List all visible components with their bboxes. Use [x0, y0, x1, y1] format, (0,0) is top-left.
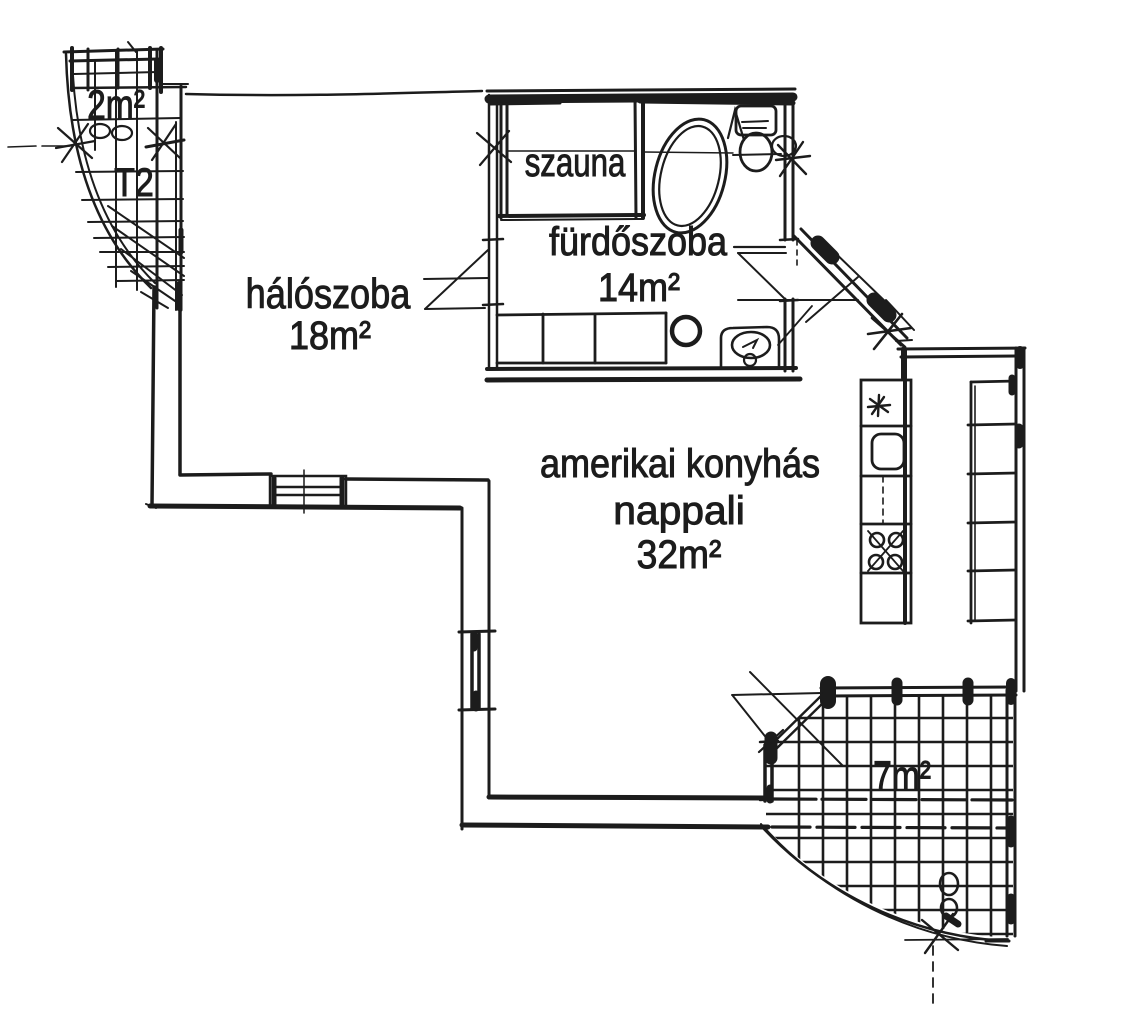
svg-text:7m²: 7m²	[873, 754, 931, 800]
svg-text:nappali: nappali	[613, 487, 745, 533]
svg-text:32m²: 32m²	[637, 533, 722, 578]
svg-text:14m²: 14m²	[598, 266, 680, 310]
svg-text:2m²: 2m²	[87, 83, 145, 129]
svg-text:szauna: szauna	[525, 140, 626, 185]
svg-text:T2: T2	[114, 159, 154, 204]
svg-text:amerikai konyhás: amerikai konyhás	[540, 442, 820, 486]
svg-text:18m²: 18m²	[289, 314, 371, 358]
svg-text:fürdőszoba: fürdőszoba	[549, 220, 728, 264]
svg-text:hálószoba: hálószoba	[246, 272, 411, 318]
